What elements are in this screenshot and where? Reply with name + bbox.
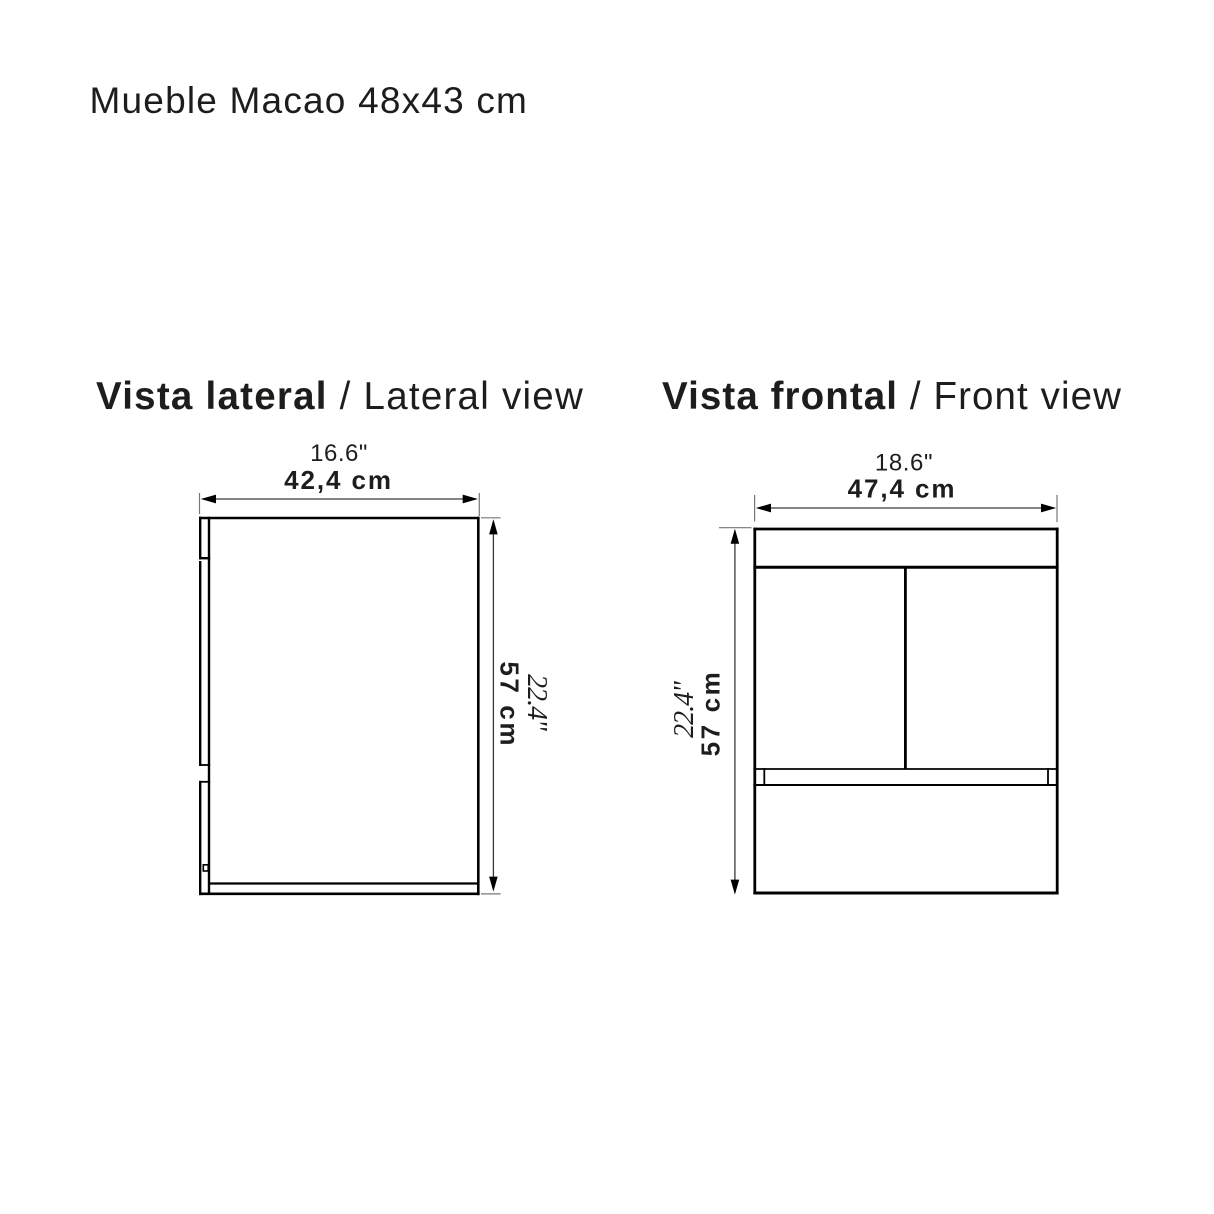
svg-text:57 cm: 57 cm bbox=[495, 661, 525, 748]
svg-text:Mueble Macao 48x43 cm: Mueble Macao 48x43 cm bbox=[90, 80, 529, 121]
svg-text:47,4 cm: 47,4 cm bbox=[848, 473, 957, 503]
svg-text:16.6": 16.6" bbox=[310, 440, 368, 467]
svg-text:22.4": 22.4" bbox=[669, 681, 700, 738]
svg-text:22.4": 22.4" bbox=[521, 674, 552, 731]
svg-text:57 cm: 57 cm bbox=[696, 670, 726, 757]
svg-text:Vista frontal / Front view: Vista frontal / Front view bbox=[662, 375, 1122, 418]
svg-text:Vista lateral / Lateral view: Vista lateral / Lateral view bbox=[96, 375, 584, 418]
svg-text:42,4 cm: 42,4 cm bbox=[284, 465, 393, 495]
